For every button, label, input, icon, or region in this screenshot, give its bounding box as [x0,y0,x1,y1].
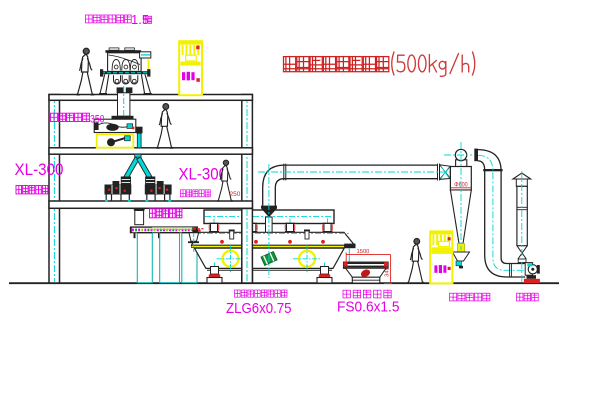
svg-text:350: 350 [90,114,105,126]
svg-text:345: 345 [385,267,391,277]
svg-text:ZLG6x0.75: ZLG6x0.75 [226,300,292,317]
svg-text:250: 250 [230,191,241,198]
svg-text:XL-300: XL-300 [15,160,64,179]
svg-text:FS0.6x1.5: FS0.6x1.5 [337,299,400,316]
svg-text:1500: 1500 [357,249,370,255]
svg-text:XL-300: XL-300 [179,165,228,184]
